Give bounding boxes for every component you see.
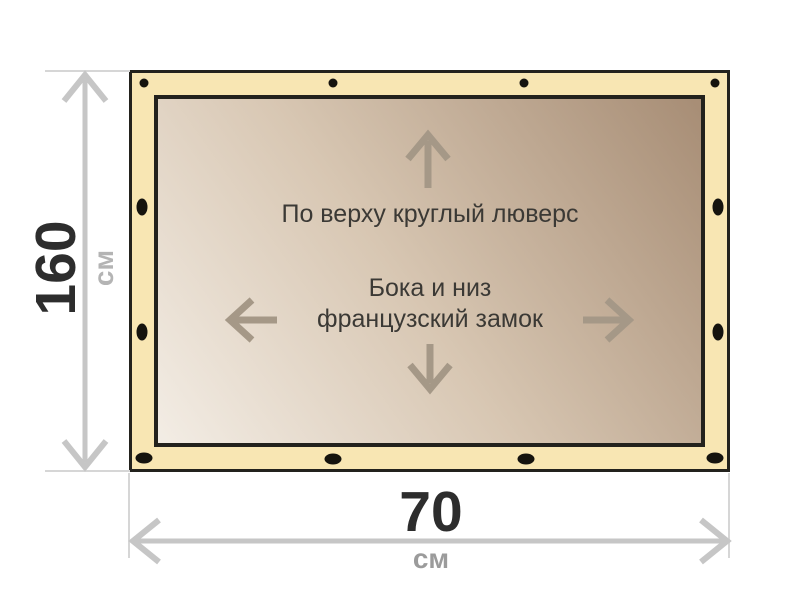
sides-bottom-note: Бока и низ французский замок <box>180 273 680 335</box>
grommet-icon <box>518 454 535 465</box>
banner-inner-canvas <box>154 95 705 447</box>
sides-bottom-note-line2: французский замок <box>180 304 680 335</box>
height-value-label: 160 <box>26 168 86 368</box>
sides-bottom-note-line1: Бока и низ <box>180 273 680 304</box>
grommet-icon <box>707 453 724 464</box>
grommet-icon <box>137 324 148 341</box>
grommet-icon <box>136 453 153 464</box>
grommet-icon <box>325 454 342 465</box>
height-unit-label: см <box>89 208 119 328</box>
grommet-icon <box>329 79 338 88</box>
grommet-icon <box>137 199 148 216</box>
top-edge-note: По верху круглый люверс <box>180 199 680 230</box>
grommet-icon <box>711 79 720 88</box>
grommet-icon <box>713 324 724 341</box>
grommet-icon <box>140 79 149 88</box>
width-value-label: 70 <box>331 484 531 541</box>
grommet-icon <box>713 199 724 216</box>
width-unit-label: см <box>371 544 491 574</box>
grommet-icon <box>520 79 529 88</box>
banner-panel <box>129 70 730 472</box>
diagram-canvas: По верху круглый люверс Бока и низ франц… <box>0 0 800 600</box>
